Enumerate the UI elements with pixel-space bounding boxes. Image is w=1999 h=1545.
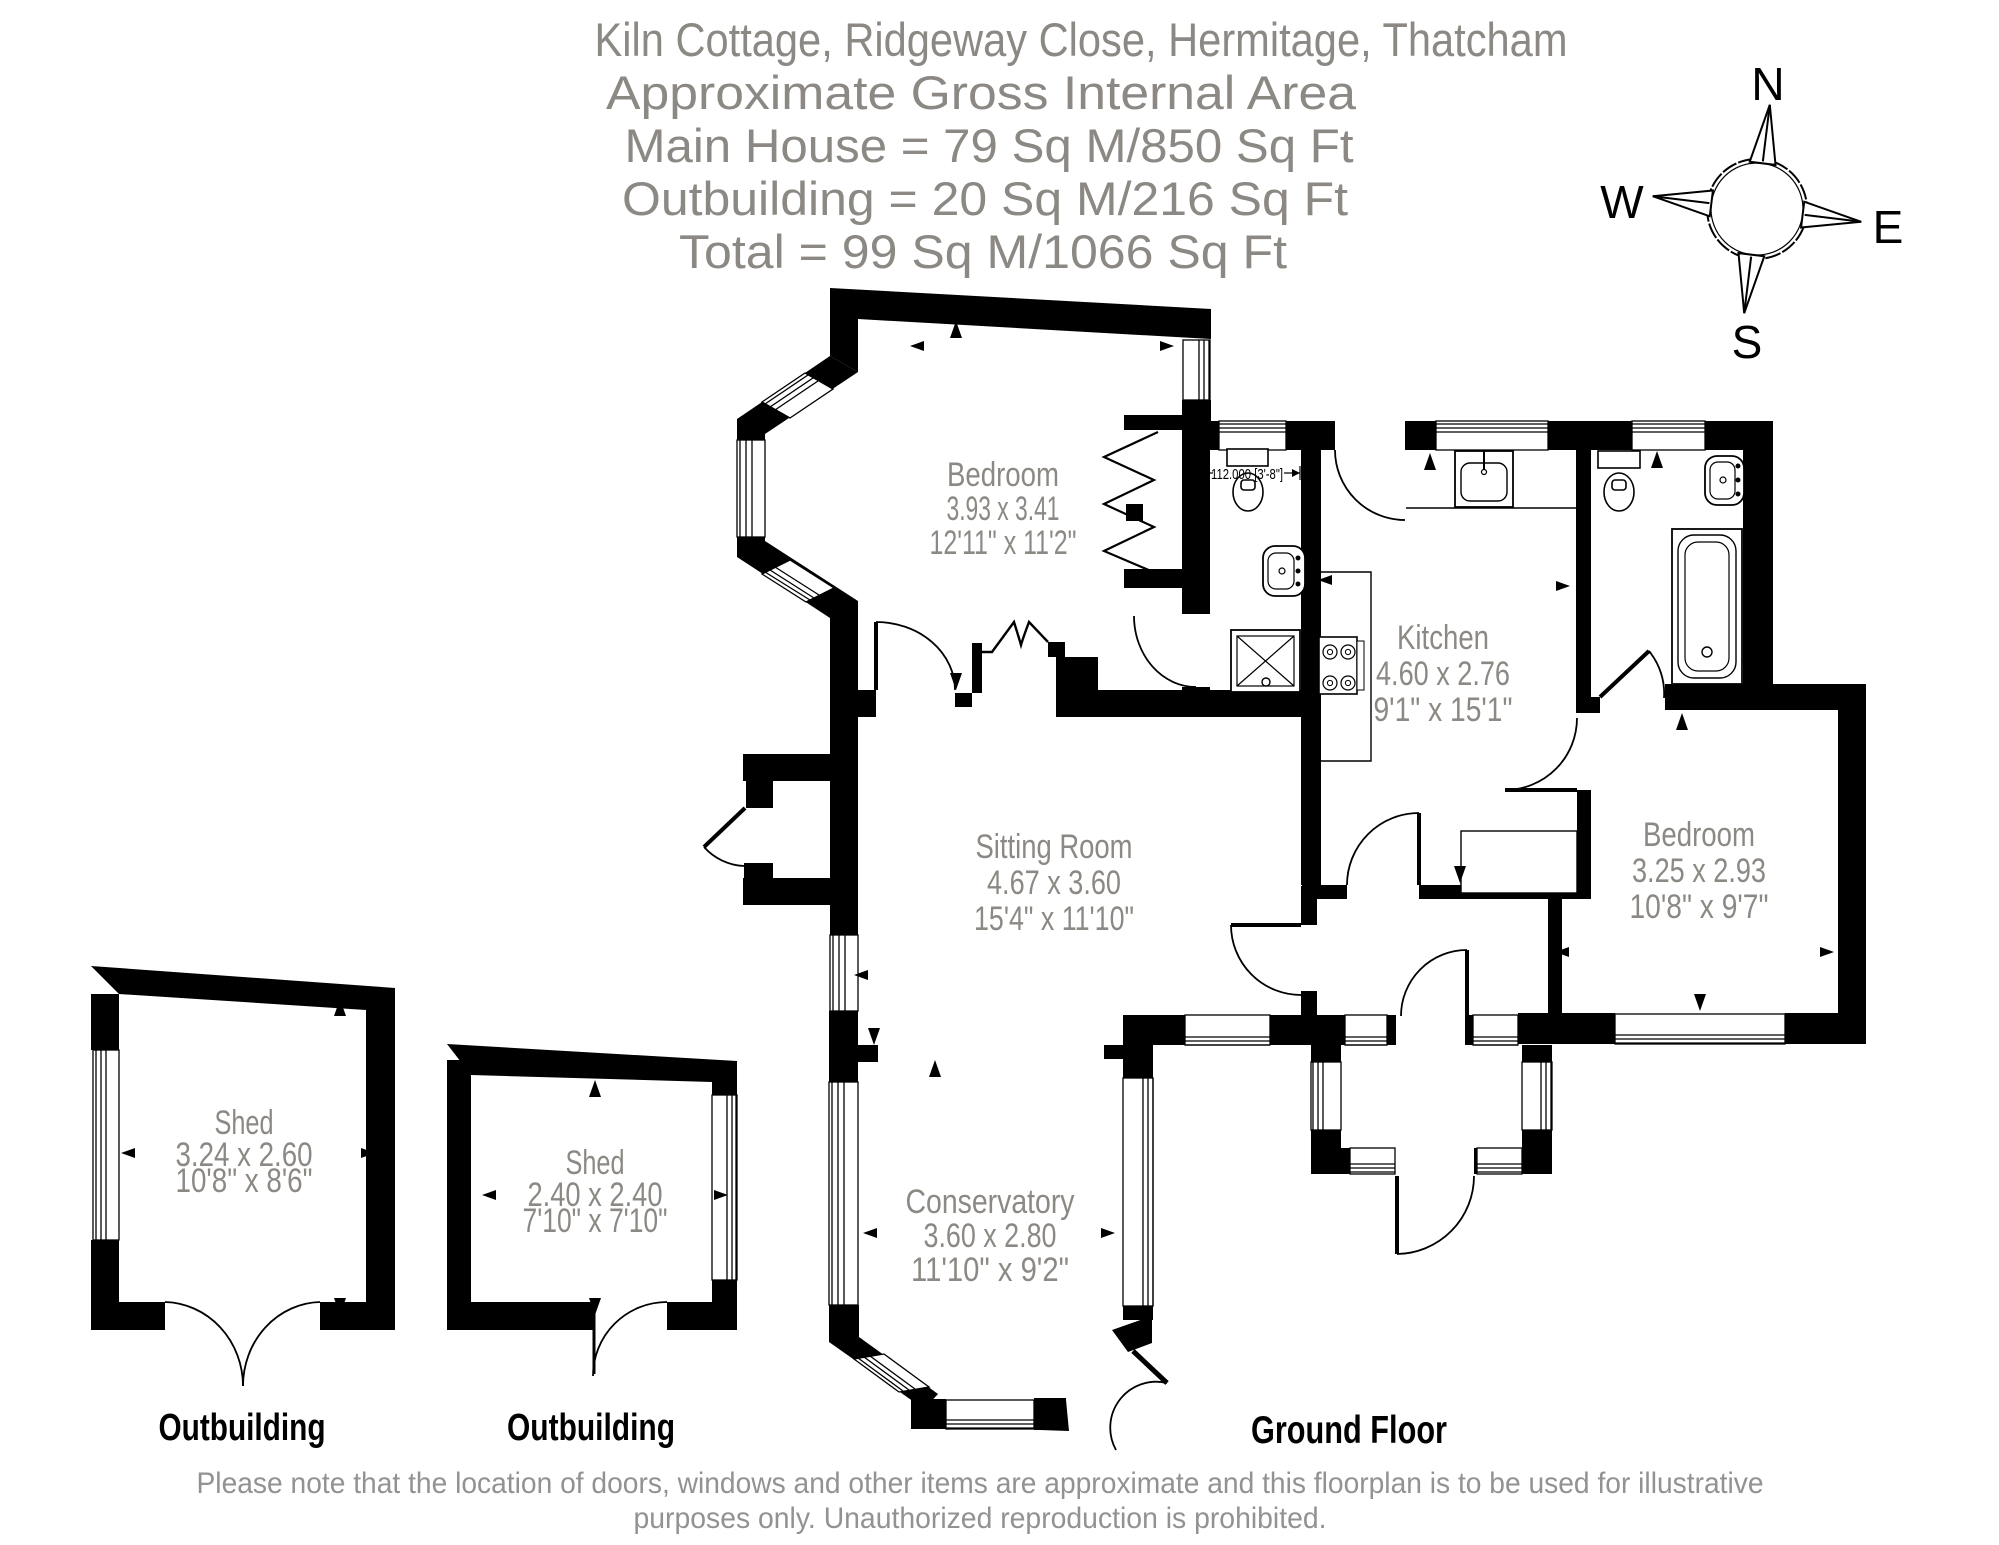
svg-text:Sitting Room: Sitting Room bbox=[976, 828, 1133, 866]
svg-text:10'8" x 8'6": 10'8" x 8'6" bbox=[176, 1162, 313, 1200]
svg-text:10'8" x 9'7": 10'8" x 9'7" bbox=[1630, 888, 1769, 926]
svg-text:12'11" x 11'2": 12'11" x 11'2" bbox=[930, 524, 1077, 562]
svg-text:Conservatory: Conservatory bbox=[906, 1183, 1075, 1221]
svg-text:purposes only. Unauthorized re: purposes only. Unauthorized reproduction… bbox=[634, 1502, 1327, 1535]
svg-text:E: E bbox=[1873, 201, 1904, 253]
svg-text:Main House = 79 Sq M/850 Sq Ft: Main House = 79 Sq M/850 Sq Ft bbox=[625, 119, 1354, 172]
svg-text:3.93 x 3.41: 3.93 x 3.41 bbox=[947, 490, 1060, 528]
svg-text:N: N bbox=[1751, 58, 1784, 110]
svg-text:15'4" x 11'10": 15'4" x 11'10" bbox=[974, 900, 1134, 938]
svg-text:Approximate Gross Internal Are: Approximate Gross Internal Area bbox=[606, 66, 1357, 119]
svg-text:Outbuilding: Outbuilding bbox=[507, 1407, 675, 1449]
svg-text:Total = 99 Sq M/1066 Sq Ft: Total = 99 Sq M/1066 Sq Ft bbox=[679, 225, 1287, 278]
svg-text:Ground Floor: Ground Floor bbox=[1251, 1409, 1447, 1452]
svg-text:3.25 x 2.93: 3.25 x 2.93 bbox=[1632, 852, 1766, 890]
svg-text:Bedroom: Bedroom bbox=[947, 456, 1059, 494]
svg-text:4.60 x 2.76: 4.60 x 2.76 bbox=[1376, 655, 1510, 693]
svg-text:9'1" x 15'1": 9'1" x 15'1" bbox=[1374, 691, 1513, 729]
svg-text:7'10" x 7'10": 7'10" x 7'10" bbox=[523, 1202, 668, 1240]
svg-text:3.60 x 2.80: 3.60 x 2.80 bbox=[924, 1217, 1057, 1255]
svg-text:112.000 [3'-8"]: 112.000 [3'-8"] bbox=[1211, 466, 1283, 483]
svg-text:Kiln Cottage, Ridgeway Close,: Kiln Cottage, Ridgeway Close, Hermitage,… bbox=[595, 13, 1568, 66]
svg-text:Bedroom: Bedroom bbox=[1643, 816, 1755, 854]
svg-text:Outbuilding = 20 Sq M/216 Sq F: Outbuilding = 20 Sq M/216 Sq Ft bbox=[622, 172, 1348, 225]
svg-text:S: S bbox=[1732, 316, 1763, 368]
svg-text:W: W bbox=[1600, 176, 1644, 228]
svg-text:11'10" x 9'2": 11'10" x 9'2" bbox=[911, 1251, 1069, 1289]
svg-text:Outbuilding: Outbuilding bbox=[159, 1407, 326, 1449]
svg-text:4.67 x 3.60: 4.67 x 3.60 bbox=[987, 864, 1121, 902]
svg-text:Kitchen: Kitchen bbox=[1397, 619, 1489, 657]
svg-text:Please note that the location: Please note that the location of doors, … bbox=[197, 1467, 1764, 1500]
